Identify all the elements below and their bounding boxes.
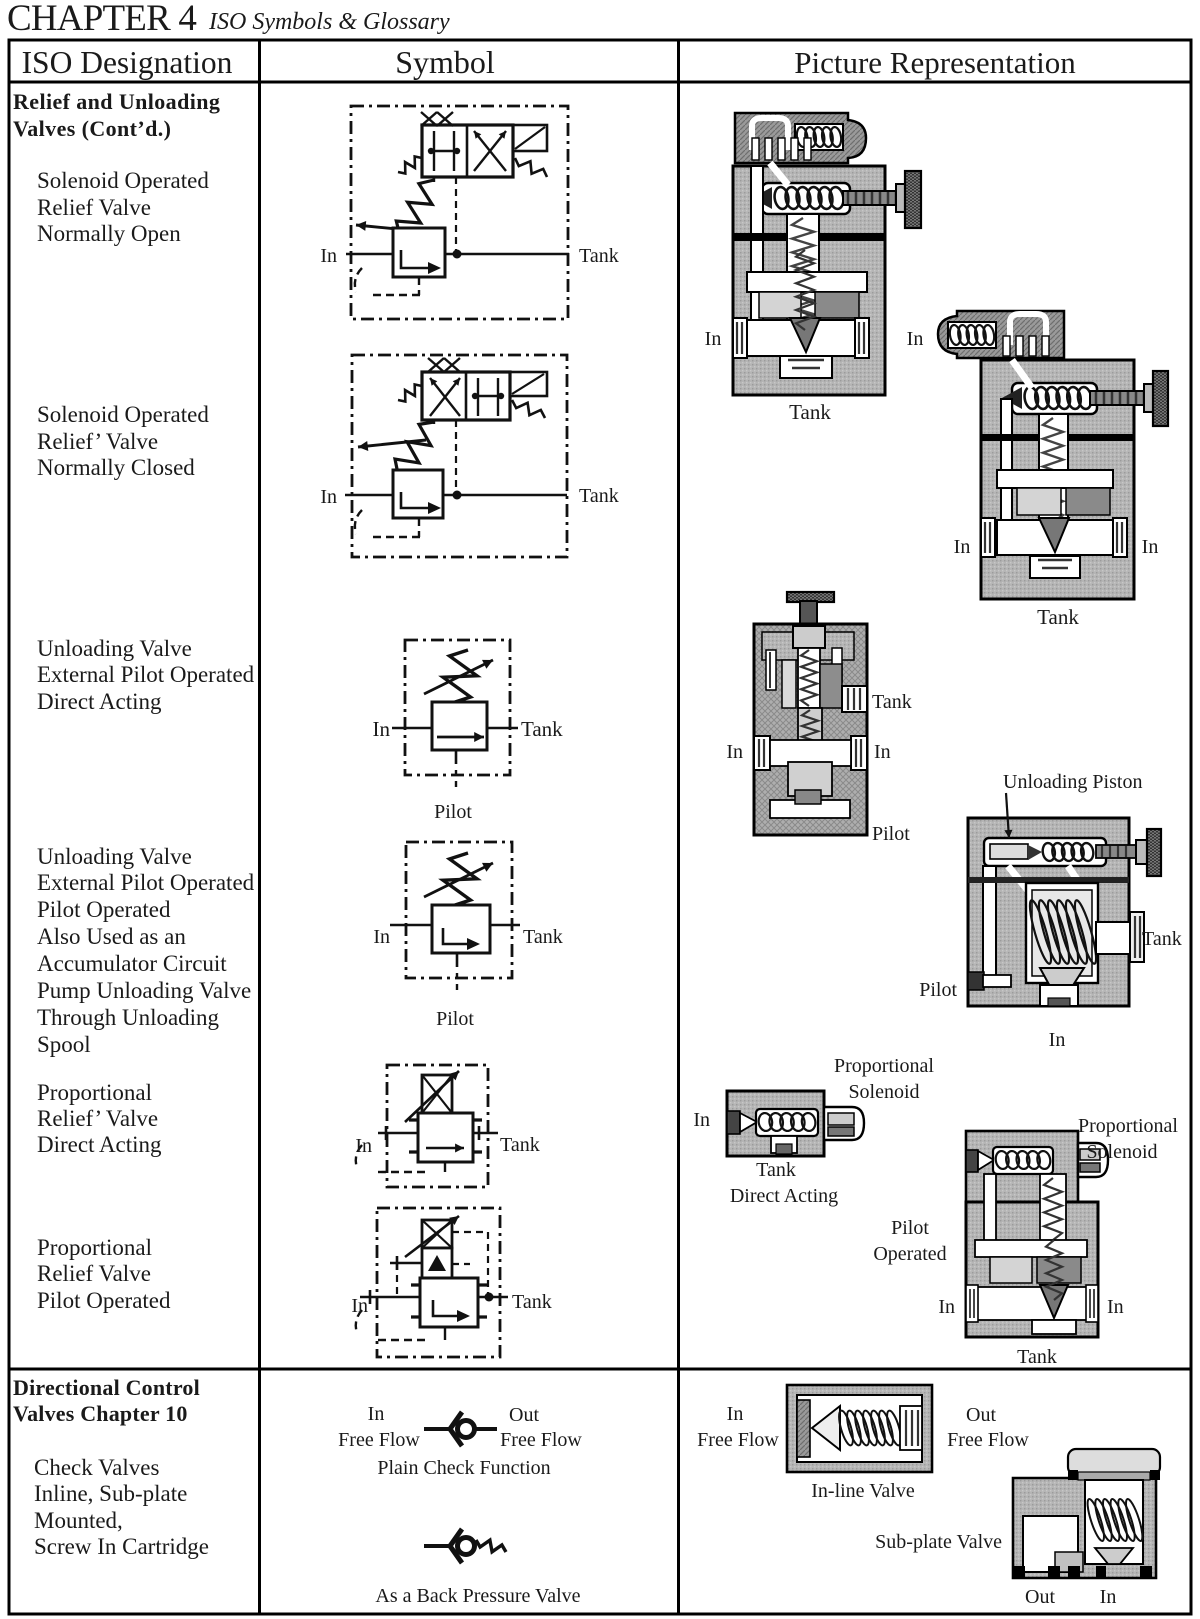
- svg-text:Relief and Unloading: Relief and Unloading: [13, 89, 220, 114]
- svg-text:Spool: Spool: [37, 1032, 91, 1057]
- svg-text:Check Valves: Check Valves: [34, 1455, 159, 1480]
- svg-text:ISO Designation: ISO Designation: [22, 45, 233, 80]
- svg-text:ISO Symbols & Glossary: ISO Symbols & Glossary: [208, 9, 450, 35]
- svg-text:Proportional: Proportional: [37, 1235, 152, 1260]
- svg-text:In: In: [874, 741, 891, 763]
- svg-text:Tank: Tank: [1037, 605, 1079, 629]
- svg-text:Out: Out: [1025, 1586, 1055, 1608]
- svg-text:Pump Unloading Valve: Pump Unloading Valve: [37, 978, 251, 1003]
- svg-text:External Pilot Operated: External Pilot Operated: [37, 870, 255, 895]
- svg-text:Tank: Tank: [1142, 928, 1182, 950]
- svg-text:Proportional: Proportional: [1078, 1115, 1178, 1137]
- svg-text:In: In: [373, 926, 390, 948]
- svg-text:Direct Acting: Direct Acting: [730, 1185, 838, 1207]
- svg-text:Unloading Valve: Unloading Valve: [37, 844, 192, 869]
- svg-text:Pilot: Pilot: [872, 823, 910, 845]
- svg-text:Proportional: Proportional: [834, 1055, 934, 1077]
- svg-text:Valves Chapter 10: Valves Chapter 10: [13, 1401, 188, 1426]
- svg-text:Proportional: Proportional: [37, 1080, 152, 1105]
- svg-text:Tank: Tank: [523, 926, 563, 948]
- svg-text:Relief Valve: Relief Valve: [37, 1261, 151, 1286]
- svg-text:As a Back Pressure Valve: As a Back Pressure Valve: [375, 1585, 580, 1607]
- svg-text:Solenoid Operated: Solenoid Operated: [37, 168, 209, 193]
- svg-text:In: In: [1100, 1586, 1117, 1608]
- svg-text:Through Unloading: Through Unloading: [37, 1005, 220, 1030]
- svg-text:Out: Out: [966, 1404, 996, 1426]
- svg-text:In: In: [1049, 1029, 1066, 1051]
- svg-text:Relief’ Valve: Relief’ Valve: [37, 1106, 158, 1131]
- svg-text:Sub-plate Valve: Sub-plate Valve: [875, 1531, 1002, 1553]
- svg-text:Normally Closed: Normally Closed: [37, 455, 195, 480]
- svg-text:In: In: [320, 486, 337, 508]
- svg-text:Relief Valve: Relief Valve: [37, 195, 151, 220]
- svg-text:Plain Check Function: Plain Check Function: [377, 1457, 550, 1479]
- svg-text:Free Flow: Free Flow: [947, 1429, 1029, 1451]
- svg-text:Solenoid Operated: Solenoid Operated: [37, 402, 209, 427]
- svg-text:In: In: [954, 536, 971, 558]
- svg-text:In: In: [693, 1109, 710, 1131]
- svg-text:Pilot: Pilot: [891, 1217, 929, 1239]
- svg-text:Direct Acting: Direct Acting: [37, 1132, 162, 1157]
- svg-text:Valves (Cont’d.): Valves (Cont’d.): [13, 116, 171, 141]
- svg-text:Out: Out: [509, 1404, 539, 1426]
- svg-text:Directional Control: Directional Control: [13, 1375, 200, 1400]
- svg-text:CHAPTER 4: CHAPTER 4: [7, 0, 196, 39]
- svg-text:Pilot: Pilot: [434, 801, 472, 823]
- svg-text:In: In: [938, 1296, 955, 1318]
- svg-text:Tank: Tank: [521, 717, 563, 741]
- svg-text:Unloading Valve: Unloading Valve: [37, 636, 192, 661]
- svg-text:Relief’ Valve: Relief’ Valve: [37, 429, 158, 454]
- svg-text:Operated: Operated: [873, 1243, 946, 1265]
- svg-text:In: In: [368, 1403, 385, 1425]
- svg-text:In: In: [1142, 536, 1159, 558]
- svg-text:In: In: [727, 1403, 744, 1425]
- svg-text:Solenoid: Solenoid: [848, 1081, 919, 1103]
- svg-text:Screw In Cartridge: Screw In Cartridge: [34, 1534, 209, 1559]
- svg-text:Also Used as an: Also Used as an: [37, 924, 186, 949]
- svg-text:Symbol: Symbol: [395, 44, 495, 80]
- svg-text:Free Flow: Free Flow: [338, 1429, 420, 1451]
- svg-text:In: In: [373, 717, 391, 741]
- svg-text:Mounted,: Mounted,: [34, 1508, 123, 1533]
- svg-text:Pilot: Pilot: [919, 979, 957, 1001]
- svg-text:External Pilot Operated: External Pilot Operated: [37, 662, 255, 687]
- svg-text:In: In: [705, 328, 722, 350]
- svg-text:Pilot Operated: Pilot Operated: [37, 1288, 171, 1313]
- svg-text:Tank: Tank: [579, 485, 619, 507]
- svg-text:Picture Representation: Picture Representation: [794, 45, 1076, 80]
- svg-text:Unloading Piston: Unloading Piston: [1003, 771, 1142, 793]
- svg-text:In: In: [351, 1295, 368, 1317]
- svg-text:In: In: [907, 328, 924, 350]
- svg-text:Tank: Tank: [579, 245, 619, 267]
- svg-text:Normally Open: Normally Open: [37, 221, 181, 246]
- svg-text:Solenoid: Solenoid: [1086, 1141, 1157, 1163]
- svg-text:Pilot Operated: Pilot Operated: [37, 897, 171, 922]
- svg-text:In: In: [320, 245, 337, 267]
- svg-text:In: In: [355, 1135, 372, 1157]
- svg-text:In-line Valve: In-line Valve: [811, 1480, 915, 1502]
- svg-text:Tank: Tank: [1017, 1346, 1057, 1368]
- svg-text:Tank: Tank: [756, 1159, 796, 1181]
- svg-text:In: In: [726, 741, 743, 763]
- svg-text:Tank: Tank: [872, 691, 912, 713]
- svg-text:Tank: Tank: [789, 400, 831, 424]
- svg-text:Tank: Tank: [500, 1134, 540, 1156]
- svg-text:Free Flow: Free Flow: [697, 1429, 779, 1451]
- svg-text:Tank: Tank: [512, 1291, 552, 1313]
- svg-text:Direct Acting: Direct Acting: [37, 689, 162, 714]
- svg-text:Free Flow: Free Flow: [500, 1429, 582, 1451]
- svg-text:Inline, Sub-plate: Inline, Sub-plate: [34, 1481, 187, 1506]
- svg-text:Pilot: Pilot: [436, 1008, 474, 1030]
- svg-text:Accumulator Circuit: Accumulator Circuit: [37, 951, 227, 976]
- svg-text:In: In: [1107, 1296, 1124, 1318]
